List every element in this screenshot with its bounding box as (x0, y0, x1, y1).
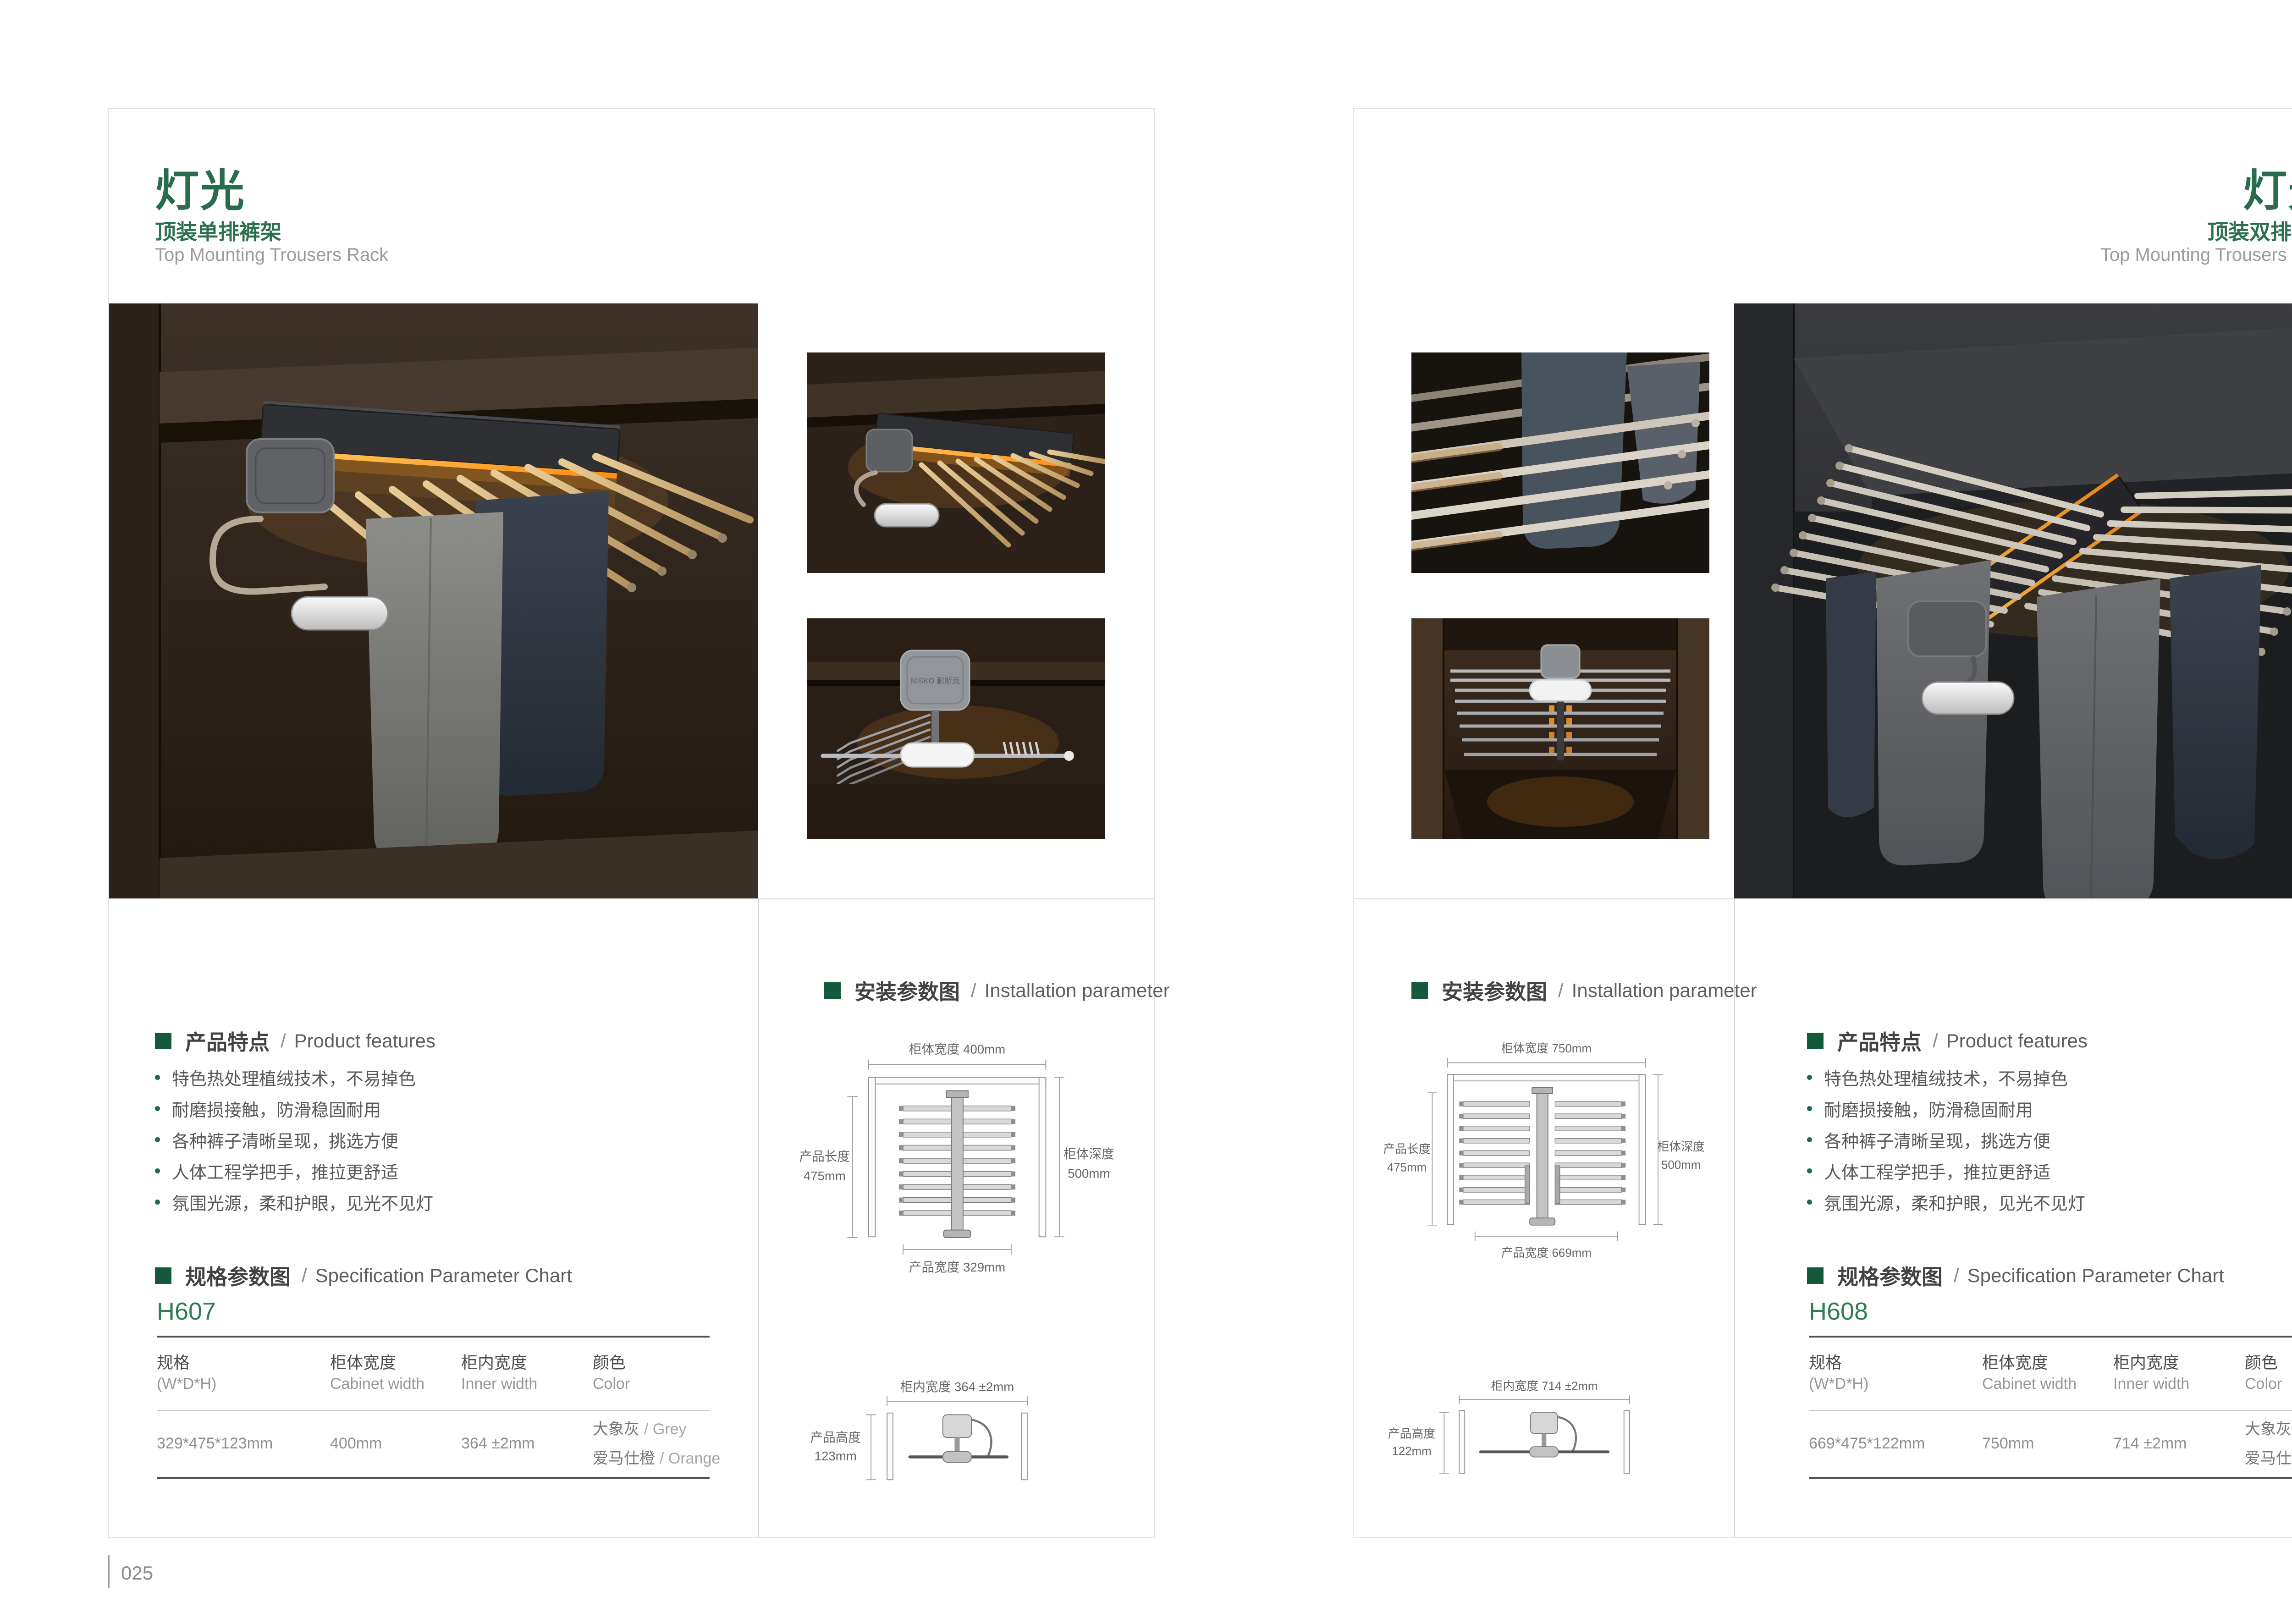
features-heading: 产品特点 / Product features (1807, 1026, 2088, 1056)
col-header-color-cn: 颜色 (2245, 1349, 2278, 1373)
install-heading: 安装参数图 / Installation parameter (1411, 975, 1757, 1006)
install-heading: 安装参数图 / Installation parameter (824, 975, 1170, 1006)
bullet-dot-icon (155, 1106, 160, 1111)
bullet-dot-icon (155, 1137, 160, 1142)
color-orange-cn: 爱马仕橙 (2245, 1450, 2292, 1467)
feature-text: 耐磨损接触，防滑稳固耐用 (1824, 1096, 2033, 1121)
heading-slash: / (1933, 1030, 1938, 1052)
features-heading-cn: 产品特点 (185, 1026, 270, 1056)
col-header-size-en: (W*D*H) (1809, 1375, 1868, 1393)
table-rule-bottom (157, 1477, 710, 1479)
photo-detail-folded-rack-art: NISKO 耐斯克 (807, 618, 1105, 839)
dim-product-width: 产品宽度 329mm (909, 1260, 1005, 1274)
dim-product-length-label: 产品长度 (1384, 1143, 1431, 1156)
photo-detail-rack-lit (807, 352, 1105, 573)
feature-item: 人体工程学把手，推拉更舒适 (1807, 1155, 2292, 1186)
table-rule-bottom (1809, 1477, 2292, 1479)
color-orange-cn: 爱马仕橙 (593, 1450, 655, 1467)
feature-text: 人体工程学把手，推拉更舒适 (172, 1158, 398, 1184)
photo-detail-top-view (1411, 618, 1709, 839)
green-square-icon (155, 1033, 171, 1049)
section-divider-horizontal (1354, 898, 2292, 899)
bullet-dot-icon (1807, 1106, 1812, 1111)
brand-logo: NISKO 耐斯克 (910, 677, 960, 685)
features-heading-cn: 产品特点 (1837, 1026, 1922, 1056)
photo-detail-folded-rack: NISKO 耐斯克 (807, 618, 1105, 839)
photo-main-double-rack (1734, 303, 2292, 898)
spec-heading-cn: 规格参数图 (185, 1261, 291, 1291)
heading-slash: / (281, 1030, 286, 1052)
col-header-inner-cn: 柜内宽度 (2113, 1349, 2179, 1373)
bullet-dot-icon (155, 1200, 160, 1205)
feature-item: 耐磨损接触，防滑稳固耐用 (155, 1093, 723, 1124)
green-square-icon (1411, 982, 1428, 999)
install-heading-en: Installation parameter (985, 980, 1170, 1002)
dim-product-height-value: 122mm (1392, 1445, 1431, 1458)
model-code: H608 (1809, 1297, 1868, 1326)
dim-product-height-value: 123mm (815, 1449, 857, 1463)
cell-color-2: 爱马仕橙/ Orange (593, 1446, 720, 1468)
dim-cabinet-width: 柜体宽度 750mm (1501, 1042, 1592, 1055)
col-header-color-cn: 颜色 (593, 1349, 626, 1373)
cell-color-2: 爱马仕橙/ Orange (2245, 1446, 2292, 1468)
cell-color-1: 大象灰/ Grey (593, 1416, 687, 1439)
spec-heading-en: Specification Parameter Chart (315, 1265, 572, 1287)
feature-text: 各种裤子清晰呈现，挑选方便 (1824, 1127, 2050, 1152)
bullet-dot-icon (1807, 1200, 1812, 1205)
feature-text: 各种裤子清晰呈现，挑选方便 (172, 1127, 398, 1152)
install-diagram-front-view: 柜内宽度 714 ±2mm 产品高度 122mm (1384, 1374, 1705, 1493)
feature-text: 氛围光源，柔和护眼，见光不见灯 (172, 1189, 433, 1215)
cell-cabinet-width: 750mm (1982, 1435, 2034, 1453)
features-list: 特色热处理植绒技术，不易掉色 耐磨损接触，防滑稳固耐用 各种裤子清晰呈现，挑选方… (1807, 1062, 2292, 1217)
heading-slash: / (971, 980, 976, 1002)
col-header-cabinet-cn: 柜体宽度 (330, 1349, 396, 1373)
heading-slash: / (302, 1265, 307, 1287)
color-grey-cn: 大象灰 (593, 1420, 639, 1438)
color-grey-en: / Grey (644, 1420, 687, 1438)
green-square-icon (824, 982, 841, 999)
spec-table: 规格 (W*D*H) 柜体宽度 Cabinet width 柜内宽度 Inner… (1809, 1336, 2292, 1479)
green-square-icon (155, 1267, 171, 1284)
photo-detail-rack-lit-art (807, 352, 1105, 573)
dim-cabinet-depth-value: 500mm (1068, 1166, 1110, 1180)
green-square-icon (1807, 1033, 1824, 1049)
col-header-size-cn: 规格 (157, 1349, 190, 1373)
dim-inner-width: 柜内宽度 364 ±2mm (900, 1380, 1014, 1394)
col-header-color-en: Color (2245, 1375, 2282, 1393)
bullet-dot-icon (155, 1168, 160, 1173)
cell-size: 669*475*122mm (1809, 1435, 1925, 1453)
cell-color-1: 大象灰/ Grey (2245, 1416, 2292, 1439)
feature-text: 特色热处理植绒技术，不易掉色 (1824, 1065, 2068, 1090)
spec-heading-en: Specification Parameter Chart (1967, 1265, 2224, 1287)
bullet-dot-icon (155, 1075, 160, 1080)
heading-slash: / (1558, 980, 1564, 1002)
photo-main-single-rack (109, 303, 758, 898)
table-rule-mid (157, 1410, 710, 1411)
color-orange-en: / Orange (660, 1450, 720, 1467)
green-square-icon (1807, 1267, 1824, 1284)
feature-item: 特色热处理植绒技术，不易掉色 (155, 1062, 723, 1093)
photo-detail-rails-trousers-art (1411, 352, 1709, 573)
color-grey-cn: 大象灰 (2245, 1420, 2292, 1438)
section-divider-vertical (758, 898, 759, 1537)
catalog-spread: 灯光 顶装单排裤架 Top Mounting Trousers Rack (0, 0, 2292, 1624)
page-title: 灯光 (2243, 155, 2292, 219)
feature-text: 氛围光源，柔和护眼，见光不见灯 (1824, 1189, 2085, 1215)
model-code: H607 (157, 1297, 216, 1326)
bullet-dot-icon (1807, 1075, 1812, 1080)
install-diagram-top-view-art: 柜体宽度 750mm (1384, 1035, 1705, 1281)
page-number-left: 025 (121, 1562, 153, 1584)
dim-cabinet-depth-value: 500mm (1661, 1159, 1701, 1172)
col-header-inner-en: Inner width (461, 1375, 537, 1393)
table-rule-mid (1809, 1410, 2292, 1411)
dim-product-height-label: 产品高度 (810, 1430, 861, 1444)
dim-product-width: 产品宽度 669mm (1501, 1246, 1592, 1260)
feature-text: 特色热处理植绒技术，不易掉色 (172, 1065, 416, 1090)
install-diagram-top-view: 柜体宽度 400mm 产品长度 475mm (797, 1035, 1118, 1297)
dim-cabinet-width: 柜体宽度 400mm (909, 1042, 1005, 1057)
col-header-size-en: (W*D*H) (157, 1375, 216, 1393)
page-title: 灯光 (155, 155, 246, 219)
col-header-cabinet-cn: 柜体宽度 (1982, 1349, 2048, 1373)
features-heading-en: Product features (294, 1030, 435, 1052)
table-rule-top (157, 1336, 710, 1338)
table-rule-top (1809, 1336, 2292, 1338)
cell-cabinet-width: 400mm (330, 1435, 382, 1453)
features-list: 特色热处理植绒技术，不易掉色 耐磨损接触，防滑稳固耐用 各种裤子清晰呈现，挑选方… (155, 1062, 723, 1217)
install-diagram-front-view-art: 柜内宽度 714 ±2mm 产品高度 122mm (1384, 1374, 1705, 1493)
dim-product-height-label: 产品高度 (1388, 1427, 1436, 1440)
dim-product-length-value: 475mm (1387, 1161, 1427, 1174)
photo-detail-rails-trousers (1411, 352, 1709, 573)
col-header-cabinet-en: Cabinet width (330, 1375, 424, 1393)
dim-inner-width: 柜内宽度 714 ±2mm (1491, 1380, 1598, 1393)
install-heading-cn: 安装参数图 (1442, 975, 1547, 1006)
feature-item: 人体工程学把手，推拉更舒适 (155, 1155, 723, 1186)
install-diagram-front-view: 柜内宽度 364 ±2mm 产品高度 123mm (797, 1374, 1118, 1501)
col-header-cabinet-en: Cabinet width (1982, 1375, 2077, 1393)
page-subtitle: 顶装单排裤架 (155, 215, 281, 246)
page-subtitle-en: Top Mounting Trousers Rack (2100, 245, 2292, 265)
col-header-size-cn: 规格 (1809, 1349, 1842, 1373)
cell-inner-width: 714 ±2mm (2113, 1435, 2187, 1453)
cell-size: 329*475*123mm (157, 1435, 273, 1453)
features-heading: 产品特点 / Product features (155, 1026, 435, 1056)
dim-cabinet-depth-label: 柜体深度 (1063, 1147, 1114, 1161)
dim-cabinet-depth-label: 柜体深度 (1657, 1140, 1705, 1153)
spec-heading: 规格参数图 / Specification Parameter Chart (155, 1261, 572, 1291)
features-heading-en: Product features (1946, 1030, 2088, 1052)
page-subtitle: 顶装双排裤架 (2207, 215, 2292, 246)
page-right: 灯光 顶装双排裤架 Top Mounting Trousers Rack (1353, 108, 2292, 1538)
dim-product-length-label: 产品长度 (799, 1149, 850, 1163)
heading-slash: / (1954, 1265, 1959, 1287)
feature-item: 氛围光源，柔和护眼，见光不见灯 (1807, 1186, 2292, 1217)
bullet-dot-icon (1807, 1137, 1812, 1142)
spec-heading-cn: 规格参数图 (1837, 1261, 1943, 1291)
page-subtitle-en: Top Mounting Trousers Rack (155, 245, 388, 265)
spec-heading: 规格参数图 / Specification Parameter Chart (1807, 1261, 2224, 1291)
photo-main-double-rack-art (1734, 303, 2292, 898)
page-left: 灯光 顶装单排裤架 Top Mounting Trousers Rack (108, 108, 1155, 1538)
install-heading-en: Installation parameter (1572, 980, 1757, 1002)
col-header-color-en: Color (593, 1375, 630, 1393)
feature-text: 耐磨损接触，防滑稳固耐用 (172, 1096, 381, 1121)
install-heading-cn: 安装参数图 (854, 975, 960, 1006)
feature-text: 人体工程学把手，推拉更舒适 (1824, 1158, 2050, 1184)
col-header-inner-cn: 柜内宽度 (461, 1349, 527, 1373)
install-diagram-front-view-art: 柜内宽度 364 ±2mm 产品高度 123mm (797, 1374, 1118, 1501)
feature-item: 特色热处理植绒技术，不易掉色 (1807, 1062, 2292, 1093)
page-number-tick-left (108, 1555, 110, 1588)
install-diagram-top-view: 柜体宽度 750mm (1384, 1035, 1705, 1281)
install-diagram-top-view-art: 柜体宽度 400mm 产品长度 475mm (797, 1035, 1118, 1297)
feature-item: 耐磨损接触，防滑稳固耐用 (1807, 1093, 2292, 1124)
cell-inner-width: 364 ±2mm (461, 1435, 534, 1453)
feature-item: 各种裤子清晰呈现，挑选方便 (155, 1124, 723, 1155)
bullet-dot-icon (1807, 1168, 1812, 1173)
feature-item: 氛围光源，柔和护眼，见光不见灯 (155, 1186, 723, 1217)
section-divider-horizontal (109, 898, 1154, 899)
photo-detail-top-view-art (1411, 618, 1709, 839)
dim-product-length-value: 475mm (804, 1169, 846, 1183)
col-header-inner-en: Inner width (2113, 1375, 2189, 1393)
photo-main-single-rack-art (109, 303, 758, 898)
feature-item: 各种裤子清晰呈现，挑选方便 (1807, 1124, 2292, 1155)
spec-table: 规格 (W*D*H) 柜体宽度 Cabinet width 柜内宽度 Inner… (157, 1336, 710, 1479)
